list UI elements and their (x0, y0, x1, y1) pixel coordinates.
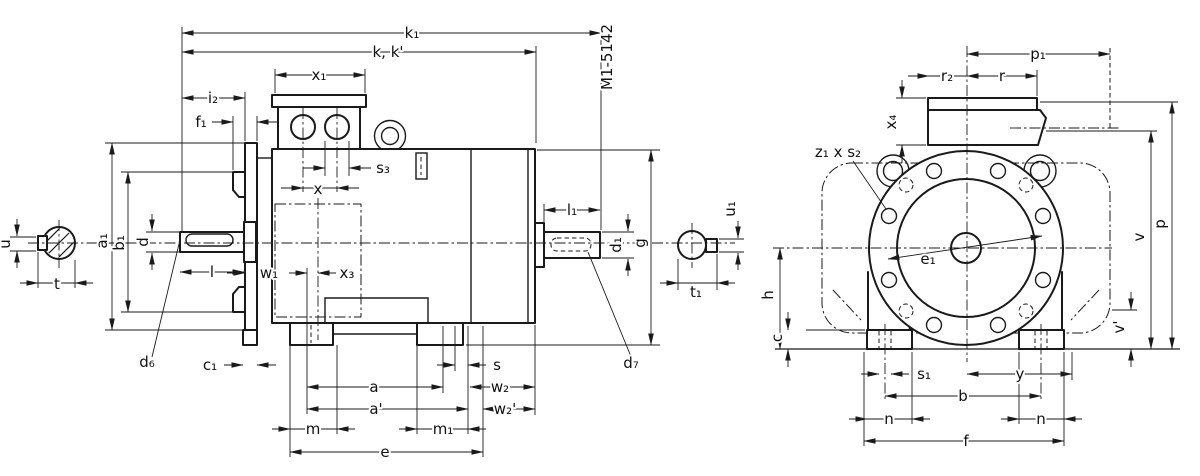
dim-label-u1: u₁ (721, 201, 739, 217)
dim-label-d6: d₆ (139, 353, 155, 371)
motor-dimension-drawing: k₁ k, k' x₁ i₂ f₁ s₃ x l w₁ x₃ u t a₁ b₁… (0, 0, 1200, 476)
dim-label-w2: w₂ (491, 378, 509, 396)
dim-label-w1: w₁ (260, 264, 278, 282)
dim-label-b1: b₁ (110, 235, 128, 251)
dim-label-s: s (493, 356, 501, 374)
dim-label-i2: i₂ (208, 89, 218, 107)
dim-label-e1: e₁ (920, 250, 935, 268)
dim-label-c: c (768, 334, 786, 342)
dim-label-d: d (134, 237, 152, 247)
dim-label-f: f (963, 432, 969, 450)
dim-label-r2: r₂ (941, 67, 953, 85)
dim-label-l: l (210, 263, 214, 281)
dim-label-d1: d₁ (607, 237, 625, 253)
dim-label-n-right: n (1036, 410, 1046, 428)
drawing-number: M1-5142 (598, 24, 616, 90)
dim-label-s1: s₁ (917, 365, 931, 383)
dim-label-l1: l₁ (567, 201, 577, 219)
dim-label-r: r (999, 67, 1006, 85)
dim-label-g: g (631, 238, 649, 248)
dim-label-b: b (958, 387, 968, 405)
dim-label-kk: k, k' (372, 43, 403, 61)
dim-label-a: a (369, 378, 378, 396)
dim-label-s3: s₃ (376, 159, 390, 177)
dim-label-t1: t₁ (690, 283, 702, 301)
dim-label-p1: p₁ (1030, 45, 1046, 63)
dim-label-e: e (380, 443, 389, 461)
dim-label-x3: x₃ (340, 264, 355, 282)
dim-label-v: v (1130, 232, 1148, 241)
dim-label-p: p (1151, 219, 1169, 229)
dim-label-k1: k₁ (405, 24, 420, 42)
dim-label-x4: x₄ (882, 115, 900, 130)
dim-label-n-left: n (884, 410, 894, 428)
drawing-canvas: k₁ k, k' x₁ i₂ f₁ s₃ x l w₁ x₃ u t a₁ b₁… (0, 0, 1200, 476)
dim-label-m1: m₁ (433, 420, 454, 438)
front-view-outline (773, 46, 1180, 402)
dim-label-f1: f₁ (195, 113, 206, 131)
dim-label-t: t (54, 275, 60, 293)
dim-label-x1: x₁ (312, 66, 327, 84)
dim-label-y: y (1016, 365, 1025, 383)
dim-label-h: h (759, 290, 777, 300)
dim-label-a1: a₁ (93, 233, 111, 248)
dim-label-d7: d₇ (623, 354, 639, 372)
dim-label-v-prime: v' (1110, 320, 1128, 333)
dim-label-u: u (0, 239, 14, 249)
dim-label-z1s2: z₁ x s₂ (815, 143, 861, 161)
dim-label-a-prime: a' (369, 400, 382, 418)
dim-label-x: x (314, 180, 323, 198)
dim-label-c1: c₁ (203, 356, 217, 374)
dim-label-m: m (306, 420, 321, 438)
dim-label-w2-prime: w₂' (494, 400, 516, 418)
